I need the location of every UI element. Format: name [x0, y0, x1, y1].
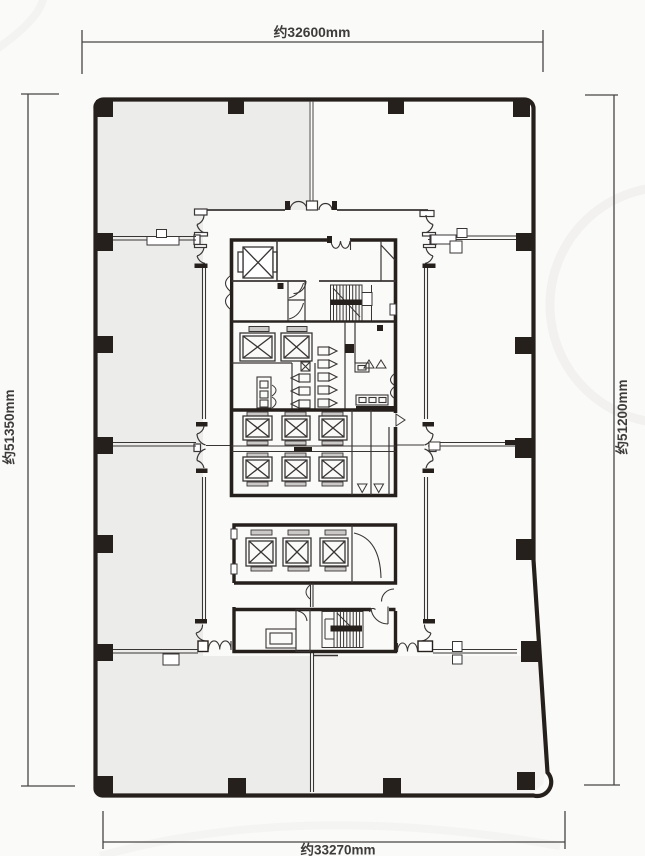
svg-text:约33270mm: 约33270mm [300, 842, 375, 856]
svg-text:约51200mm: 约51200mm [614, 379, 630, 454]
svg-text:约51350mm: 约51350mm [1, 389, 17, 464]
svg-text:约32600mm: 约32600mm [274, 24, 351, 40]
